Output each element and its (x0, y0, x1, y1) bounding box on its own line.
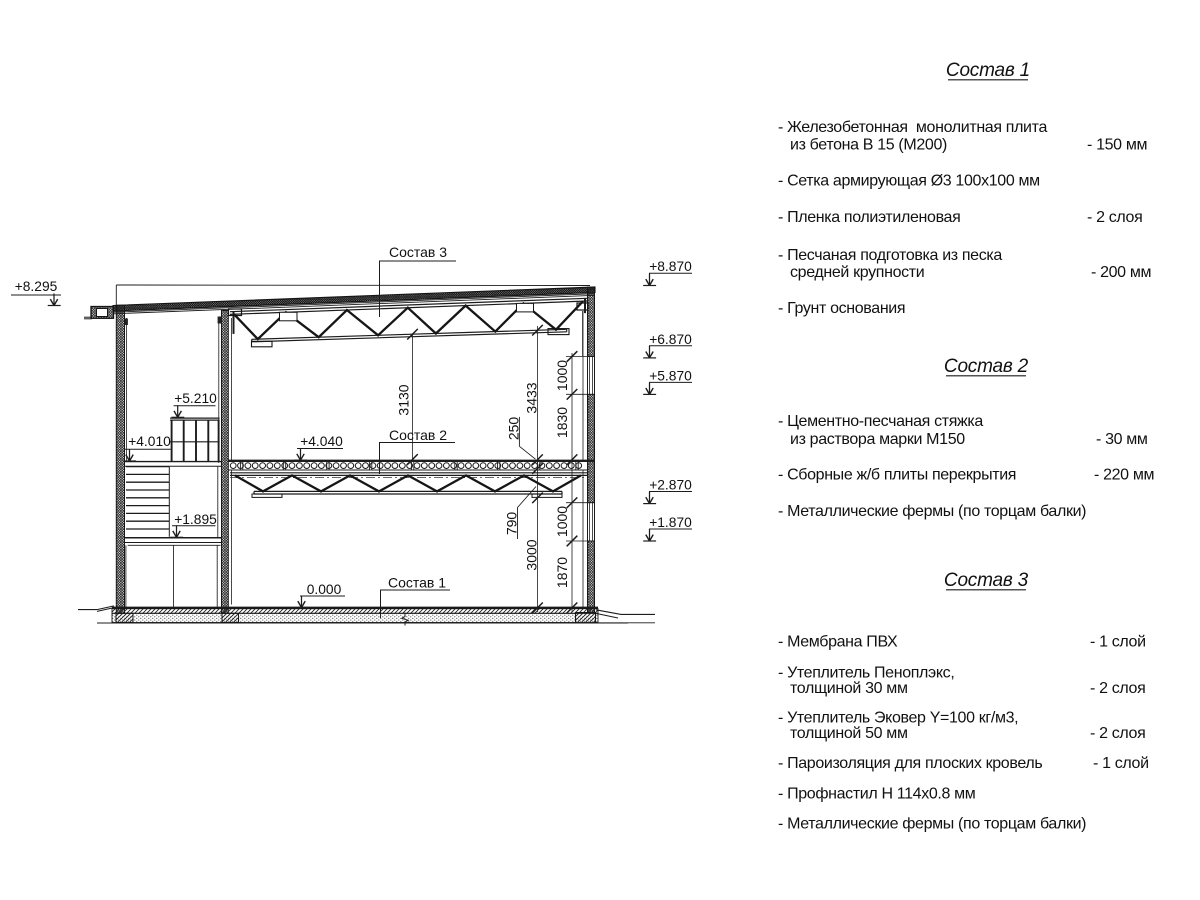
svg-text:- Грунт основания: - Грунт основания (778, 300, 905, 317)
svg-text:Состав 1: Состав 1 (946, 60, 1030, 81)
svg-text:- Мембрана ПВХ: - Мембрана ПВХ (778, 634, 898, 651)
svg-text:250: 250 (505, 417, 521, 441)
svg-text:- Сборные ж/б плиты перекрытия: - Сборные ж/б плиты перекрытия (778, 467, 1016, 484)
svg-text:- Цементно-песчаная стяжка: - Цементно-песчаная стяжка (778, 413, 983, 430)
svg-text:- 220 мм: - 220 мм (1094, 467, 1154, 484)
svg-text:3433: 3433 (523, 382, 539, 413)
svg-text:3130: 3130 (396, 384, 412, 415)
svg-text:Состав 2: Состав 2 (389, 427, 447, 443)
svg-text:- 200 мм: - 200 мм (1091, 264, 1151, 281)
svg-text:- 150 мм: - 150 мм (1087, 137, 1147, 154)
svg-text:Состав 3: Состав 3 (944, 570, 1029, 591)
svg-text:+4.040: +4.040 (300, 434, 343, 449)
svg-text:- Утеплитель Эковер Y=100 кг/м: - Утеплитель Эковер Y=100 кг/м3, (778, 710, 1018, 727)
svg-text:из бетона В 15 (М200): из бетона В 15 (М200) (790, 137, 947, 154)
svg-text:Состав 2: Состав 2 (944, 356, 1029, 377)
svg-text:1000: 1000 (554, 506, 570, 537)
svg-text:- Металлические фермы (по торц: - Металлические фермы (по торцам балки) (778, 816, 1086, 833)
svg-text:+1.895: +1.895 (174, 512, 217, 527)
svg-text:1830: 1830 (554, 407, 570, 438)
svg-text:средней крупности: средней крупности (790, 264, 924, 281)
svg-text:0.000: 0.000 (307, 582, 342, 597)
svg-text:- 2 слоя: - 2 слоя (1087, 209, 1142, 226)
svg-text:+5.210: +5.210 (174, 391, 217, 406)
svg-text:1000: 1000 (554, 360, 570, 391)
svg-text:- Металлические фермы (по торц: - Металлические фермы (по торцам балки) (778, 503, 1086, 520)
svg-text:- Утеплитель Пеноплэкс,: - Утеплитель Пеноплэкс, (778, 664, 954, 681)
svg-text:+8.295: +8.295 (15, 279, 58, 294)
svg-text:толщиной 50 мм: толщиной 50 мм (790, 725, 908, 742)
svg-text:3000: 3000 (523, 539, 539, 570)
svg-text:1870: 1870 (554, 557, 570, 588)
svg-text:Состав 1: Состав 1 (388, 575, 446, 591)
svg-text:790: 790 (504, 512, 520, 536)
svg-text:- Сетка армирующая Ø3 100х100: - Сетка армирующая Ø3 100х100 мм (778, 173, 1040, 190)
svg-text:- Железобетонная монолитная п: - Железобетонная монолитная плита (778, 119, 1047, 136)
svg-text:Состав 3: Состав 3 (389, 244, 447, 260)
svg-text:из раствора марки М150: из раствора марки М150 (790, 431, 965, 448)
svg-text:- 2 слоя: - 2 слоя (1090, 680, 1145, 697)
svg-text:- 2 слоя: - 2 слоя (1090, 725, 1145, 742)
svg-text:- 1 слой: - 1 слой (1090, 634, 1146, 651)
svg-text:- Профнастил Н 114х0.8 мм: - Профнастил Н 114х0.8 мм (778, 785, 975, 802)
svg-text:+6.870: +6.870 (649, 332, 692, 347)
svg-text:- Пленка полиэтиленовая: - Пленка полиэтиленовая (778, 209, 960, 226)
svg-text:+4.010: +4.010 (128, 434, 171, 449)
svg-text:толщиной 30 мм: толщиной 30 мм (790, 680, 908, 697)
svg-text:+2.870: +2.870 (649, 478, 692, 493)
svg-text:- 30 мм: - 30 мм (1096, 431, 1148, 448)
svg-text:- Пароизоляция для плоских кро: - Пароизоляция для плоских кровель (778, 755, 1042, 772)
svg-text:- 1 слой: - 1 слой (1093, 755, 1149, 772)
svg-text:+5.870: +5.870 (649, 369, 692, 384)
svg-text:+8.870: +8.870 (649, 259, 692, 274)
svg-text:- Песчаная подготовка из песка: - Песчаная подготовка из песка (778, 247, 1002, 264)
svg-text:+1.870: +1.870 (649, 515, 692, 530)
